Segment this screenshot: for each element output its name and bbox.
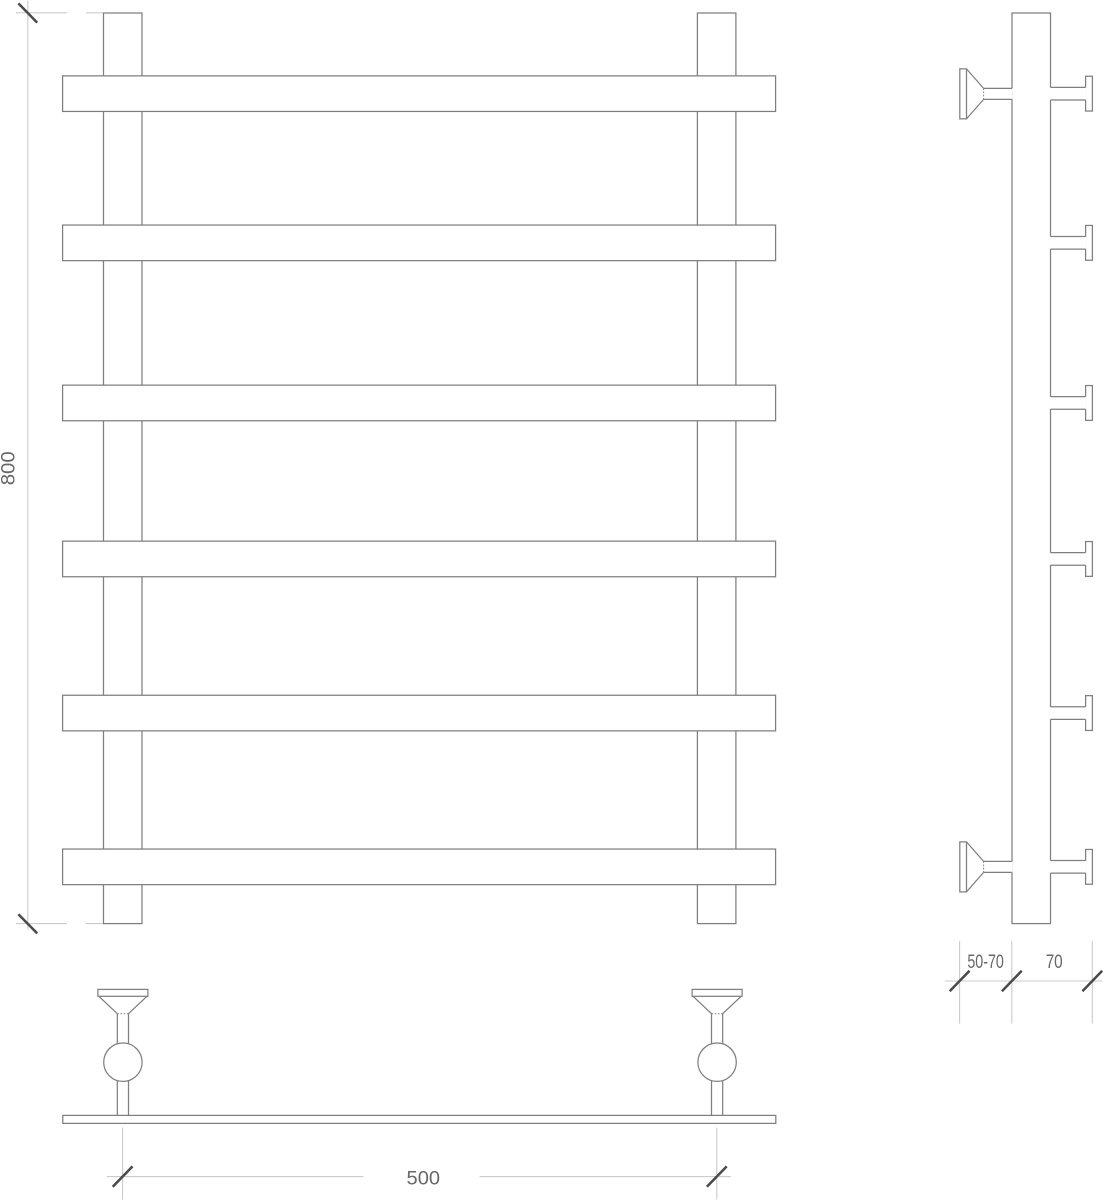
- svg-text:70: 70: [1046, 952, 1063, 973]
- svg-text:500: 500: [407, 1169, 441, 1190]
- svg-text:50-70: 50-70: [967, 952, 1004, 973]
- svg-text:800: 800: [0, 451, 19, 485]
